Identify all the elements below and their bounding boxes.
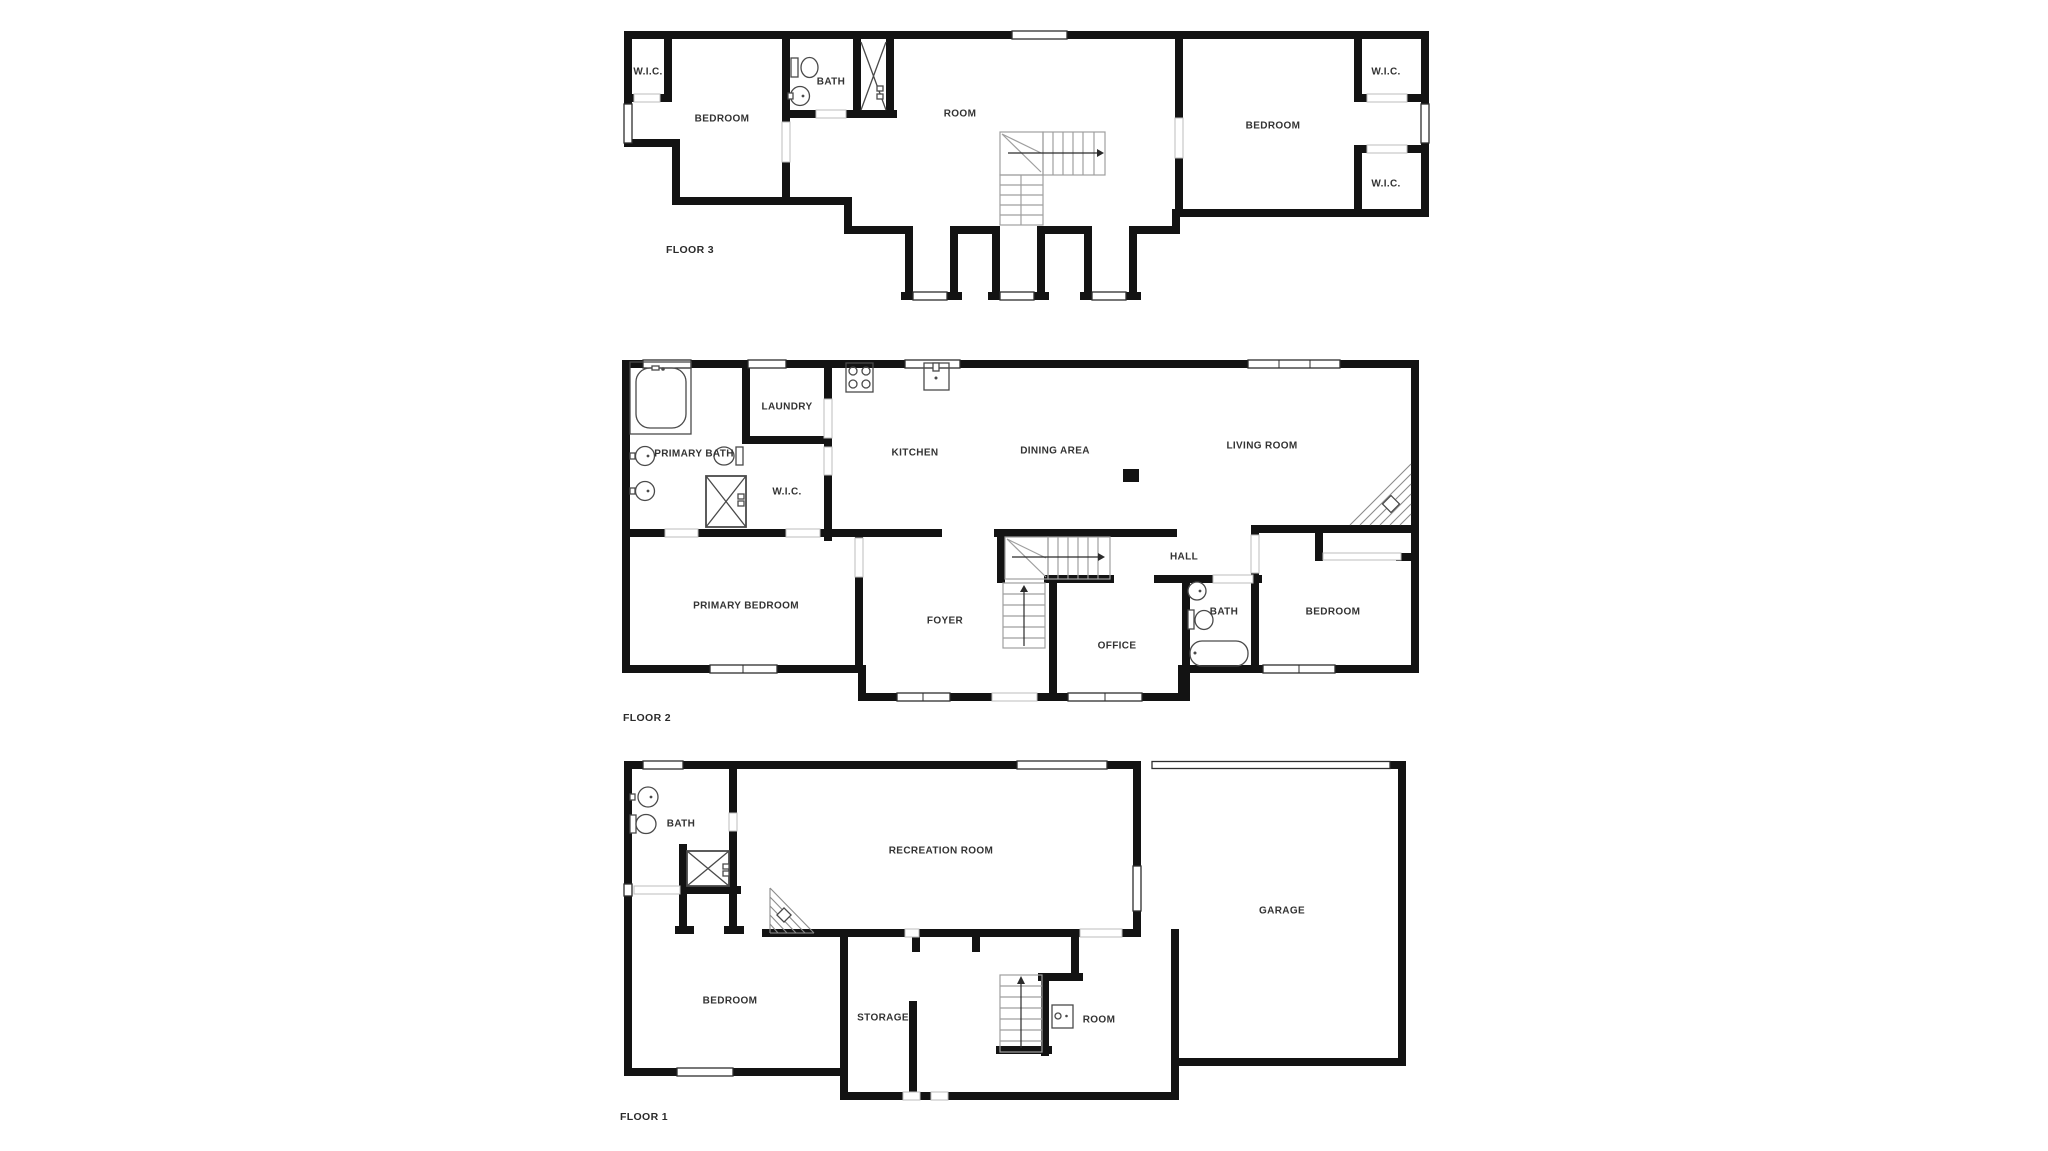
window [643, 761, 683, 769]
window [643, 360, 691, 368]
door-opening [634, 94, 660, 102]
garage-door [1152, 762, 1390, 769]
door-opening [729, 813, 737, 831]
floor-2-plan: PRIMARY BATH LAUNDRY W.I.C. KITCHEN DINI… [623, 360, 1415, 724]
room-label-room: ROOM [944, 109, 977, 120]
walls [626, 364, 1415, 697]
room-label-bedroom: BEDROOM [703, 996, 758, 1007]
walls [628, 765, 1402, 1096]
door-opening [782, 122, 790, 162]
window [1421, 104, 1429, 143]
windows [624, 31, 1429, 300]
bathtub-icon [1190, 641, 1248, 666]
sink-icon [1188, 582, 1206, 600]
room-label-primary-bedroom: PRIMARY BEDROOM [693, 601, 799, 612]
door-opening [824, 399, 832, 438]
toilet-icon [630, 815, 656, 834]
room-label-foyer: FOYER [927, 616, 964, 627]
window [1012, 31, 1067, 39]
floor-3-labels: W.I.C. BEDROOM BATH ROOM BEDROOM W.I.C. … [633, 67, 1400, 257]
water-heater-icon [1052, 1005, 1073, 1028]
floor-3-plan: W.I.C. BEDROOM BATH ROOM BEDROOM W.I.C. … [624, 31, 1429, 300]
toilet-icon [791, 58, 818, 78]
room-label-wic-top-right: W.I.C. [1371, 67, 1400, 78]
door-opening [903, 1092, 920, 1100]
window [1092, 292, 1126, 300]
staircase [1000, 975, 1042, 1052]
window [913, 292, 947, 300]
staircase [1000, 132, 1105, 225]
room-label-garage: GARAGE [1259, 906, 1305, 917]
door-opening [905, 929, 919, 937]
windows [624, 761, 1390, 1076]
sink-icon [630, 787, 658, 807]
room-label-recreation-room: RECREATION ROOM [889, 846, 994, 857]
room-label-wic-left: W.I.C. [633, 67, 662, 78]
room-label-room: ROOM [1083, 1015, 1116, 1026]
door-opening [1367, 94, 1407, 102]
walls [628, 35, 1425, 296]
room-label-wic-bottom-right: W.I.C. [1371, 179, 1400, 190]
room-label-kitchen: KITCHEN [892, 448, 939, 459]
floor-plan-canvas: W.I.C. BEDROOM BATH ROOM BEDROOM W.I.C. … [0, 0, 2048, 1151]
window [1000, 292, 1034, 300]
room-label-bath: BATH [817, 77, 845, 88]
sink-icon [630, 482, 655, 501]
room-label-primary-bath: PRIMARY BATH [654, 449, 734, 460]
room-label-bedroom: BEDROOM [1306, 607, 1361, 618]
room-label-bedroom-right: BEDROOM [1246, 121, 1301, 132]
room-label-bath: BATH [667, 819, 695, 830]
bathtub-icon [630, 362, 691, 434]
hall-bath-fixtures [1188, 582, 1248, 666]
closet-sliding-door [1323, 553, 1401, 560]
corner-fireplace [1350, 464, 1411, 525]
sink-icon [630, 447, 655, 466]
door-opening [1175, 118, 1183, 158]
room-label-wic: W.I.C. [772, 487, 801, 498]
door-opening [1251, 535, 1259, 573]
floor-2-labels: PRIMARY BATH LAUNDRY W.I.C. KITCHEN DINI… [623, 402, 1360, 725]
door-opening [1080, 929, 1122, 937]
window [624, 884, 632, 896]
primary-bath-fixtures [630, 362, 746, 527]
door-opening [824, 447, 832, 475]
door-opening [665, 529, 698, 537]
window [1017, 761, 1107, 769]
door-opening [786, 529, 820, 537]
window [1248, 360, 1340, 368]
shower-icon [861, 42, 886, 110]
room-label-office: OFFICE [1098, 641, 1137, 652]
room-label-living-room: LIVING ROOM [1226, 441, 1297, 452]
shower-icon [687, 851, 729, 886]
room-label-dining-area: DINING AREA [1020, 446, 1090, 457]
room-label-hall: HALL [1170, 552, 1198, 563]
door-opening [816, 110, 846, 118]
sink-icon [788, 87, 810, 106]
door-opening [634, 886, 680, 894]
chimney-block [1123, 469, 1139, 482]
door-opening [1213, 575, 1253, 583]
floor-1-title: FLOOR 1 [620, 1111, 668, 1123]
floor-1-plan: BATH RECREATION ROOM GARAGE BEDROOM STOR… [620, 761, 1402, 1123]
room-label-bedroom-left: BEDROOM [695, 114, 750, 125]
door-opening [931, 1092, 948, 1100]
door-openings [634, 813, 1122, 1100]
window [677, 1068, 733, 1076]
corner-fireplace [770, 888, 814, 933]
floor-3-title: FLOOR 3 [666, 244, 714, 256]
window [1133, 866, 1141, 911]
room-label-storage: STORAGE [857, 1013, 909, 1024]
window [748, 360, 786, 368]
room-label-laundry: LAUNDRY [762, 402, 813, 413]
door-opening [1367, 145, 1407, 153]
room-label-bath: BATH [1210, 607, 1238, 618]
shower-icon [706, 476, 746, 527]
floor-2-title: FLOOR 2 [623, 712, 671, 724]
door-opening [855, 538, 863, 577]
window [624, 104, 632, 143]
entry-door-opening [992, 693, 1037, 701]
